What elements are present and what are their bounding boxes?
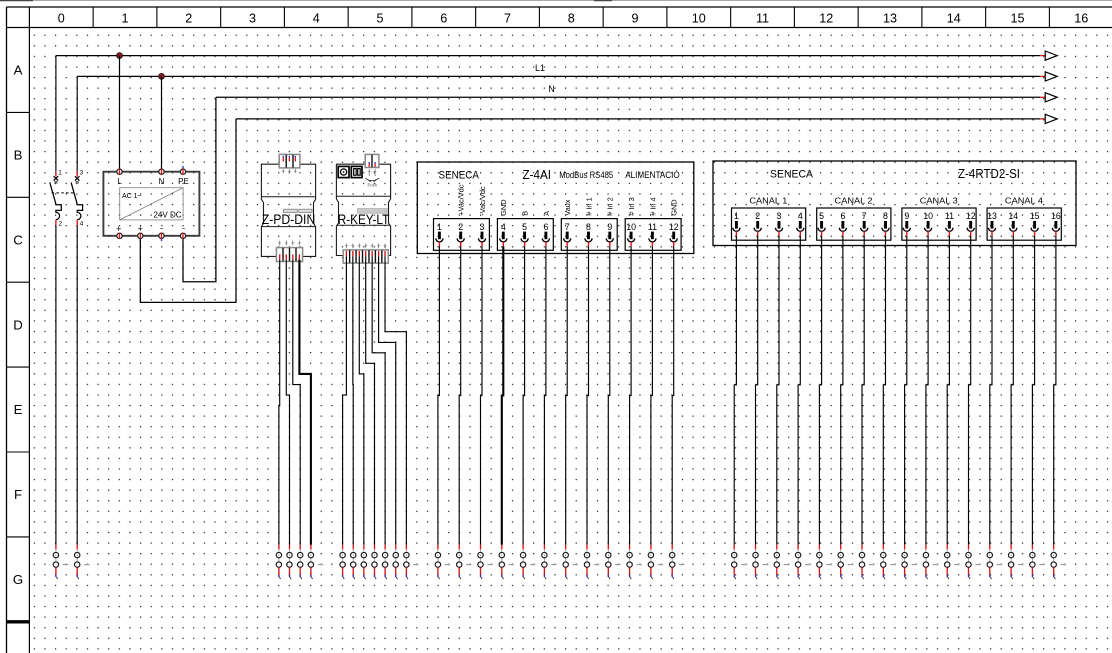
svg-text:2: 2 — [59, 221, 63, 228]
svg-text:9: 9 — [904, 211, 909, 221]
svg-text:10: 10 — [692, 12, 706, 26]
svg-text:14: 14 — [947, 12, 961, 26]
svg-text:5: 5 — [819, 211, 824, 221]
svg-text:GND: GND — [670, 199, 679, 215]
svg-text:6: 6 — [440, 12, 447, 26]
svg-text:9: 9 — [632, 12, 639, 26]
svg-text:3: 3 — [480, 222, 485, 232]
svg-text:9: 9 — [607, 222, 612, 232]
svg-text:1: 1 — [58, 169, 62, 176]
svg-text:Z-PD-DIN: Z-PD-DIN — [262, 212, 316, 227]
svg-text:R-KEY-LT: R-KEY-LT — [338, 212, 390, 227]
svg-text:4: 4 — [313, 12, 320, 26]
svg-text:L1: L1 — [535, 63, 545, 73]
svg-text:3: 3 — [777, 211, 782, 221]
svg-text:7: 7 — [565, 222, 570, 232]
svg-text:0: 0 — [58, 12, 65, 26]
svg-text:SENECA: SENECA — [770, 169, 814, 181]
svg-text:B: B — [14, 147, 23, 162]
svg-text:4: 4 — [501, 222, 506, 232]
svg-text:CANAL 3: CANAL 3 — [920, 196, 958, 206]
svg-text:−: − — [181, 226, 185, 233]
svg-text:4: 4 — [798, 211, 803, 221]
svg-text:CANAL 2: CANAL 2 — [835, 196, 873, 206]
svg-text:L: L — [117, 177, 122, 186]
svg-text:16: 16 — [1074, 12, 1088, 26]
svg-text:1: 1 — [734, 211, 739, 221]
svg-text:N: N — [548, 84, 555, 94]
svg-text:C: C — [13, 232, 23, 247]
svg-text:15: 15 — [1030, 211, 1040, 221]
svg-text:CANAL 4: CANAL 4 — [1005, 196, 1043, 206]
svg-text:8: 8 — [568, 12, 575, 26]
svg-text:1: 1 — [122, 12, 129, 26]
svg-text:+: + — [116, 224, 121, 234]
svg-text:D: D — [13, 317, 23, 332]
svg-text:6: 6 — [543, 222, 548, 232]
svg-text:13: 13 — [883, 12, 897, 26]
svg-text:14: 14 — [1008, 211, 1018, 221]
svg-text:7: 7 — [504, 12, 511, 26]
svg-text:+Vac/Vdc: +Vac/Vdc — [457, 184, 466, 216]
svg-text:3: 3 — [249, 12, 256, 26]
svg-text:8: 8 — [586, 222, 591, 232]
svg-text:ALIMENTACIÓ: ALIMENTACIÓ — [625, 170, 680, 180]
svg-text:8: 8 — [883, 211, 888, 221]
svg-text:+: + — [138, 224, 143, 234]
svg-text:4: 4 — [80, 221, 84, 228]
svg-text:−: − — [159, 226, 163, 233]
svg-text:12: 12 — [669, 222, 679, 232]
svg-text:GND: GND — [499, 199, 508, 215]
svg-text:6: 6 — [840, 211, 845, 221]
svg-text:5: 5 — [377, 12, 384, 26]
svg-text:SENECA: SENECA — [439, 169, 480, 181]
svg-text:10: 10 — [626, 222, 636, 232]
svg-text:E: E — [14, 402, 23, 417]
svg-text:AC 1~: AC 1~ — [122, 193, 142, 200]
svg-text:10: 10 — [923, 211, 933, 221]
svg-text:ModBus RS485: ModBus RS485 — [559, 170, 613, 180]
svg-text:Z-4RTD2-SI: Z-4RTD2-SI — [958, 166, 1020, 181]
svg-text:15: 15 — [1011, 12, 1025, 26]
svg-text:Vaux: Vaux — [563, 199, 572, 216]
svg-text:2: 2 — [755, 211, 760, 221]
svg-text:# In 4: # In 4 — [648, 197, 657, 216]
svg-text:B: B — [521, 211, 530, 216]
svg-text:A: A — [542, 211, 551, 216]
svg-text:Push: Push — [368, 183, 378, 188]
svg-text:16: 16 — [1051, 211, 1061, 221]
svg-text:-Vac/Vdc: -Vac/Vdc — [478, 186, 487, 216]
svg-text:2: 2 — [458, 222, 463, 232]
svg-text:3: 3 — [80, 169, 84, 176]
svg-text:11: 11 — [756, 12, 769, 26]
svg-text:7: 7 — [862, 211, 867, 221]
svg-text:11: 11 — [945, 211, 954, 221]
svg-text:12: 12 — [819, 12, 833, 26]
svg-text:24V DC: 24V DC — [153, 210, 181, 219]
svg-text:CANAL 1: CANAL 1 — [749, 196, 787, 206]
svg-text:11: 11 — [648, 222, 657, 232]
svg-text:12: 12 — [966, 211, 976, 221]
svg-text:PE: PE — [178, 177, 189, 186]
svg-text:# In 1: # In 1 — [584, 197, 593, 216]
svg-text:# In 3: # In 3 — [627, 197, 636, 216]
svg-text:G: G — [13, 572, 23, 587]
svg-text:2: 2 — [185, 12, 192, 26]
svg-text:A: A — [14, 63, 23, 78]
svg-text:Z-4AI: Z-4AI — [523, 167, 552, 182]
svg-text:1: 1 — [437, 222, 442, 232]
svg-text:5: 5 — [522, 222, 527, 232]
svg-text:# In 2: # In 2 — [606, 197, 615, 216]
svg-text:N: N — [159, 177, 165, 186]
svg-text:F: F — [14, 487, 22, 502]
svg-text:13: 13 — [987, 211, 997, 221]
